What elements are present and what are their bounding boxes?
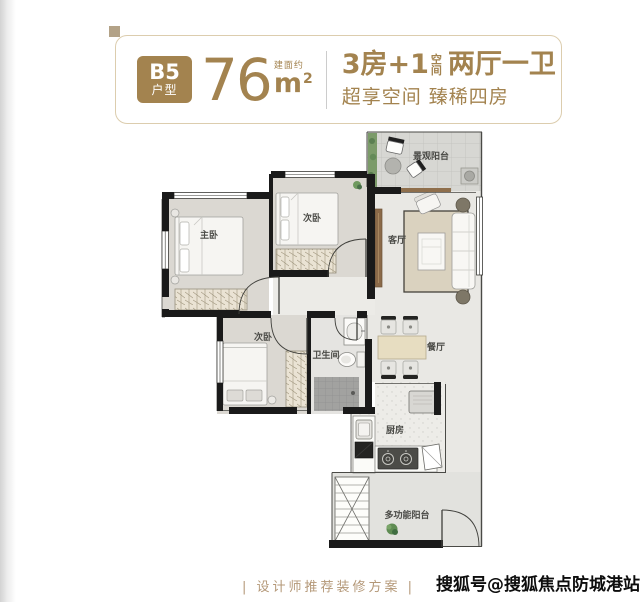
header-card: B5 户型 76 建面约 m2 3房+1 空 间 两厅一卫 超享空间 臻稀四房 — [115, 35, 562, 124]
room-label-bathroom: 卫生间 — [312, 349, 339, 361]
room-label-living-room: 客厅 — [387, 234, 406, 246]
dining-chair — [403, 361, 418, 379]
layout-headline: 3房+1 空 间 两厅一卫 — [342, 50, 556, 80]
area-value: 76 — [201, 49, 271, 111]
area-unit: m2 — [274, 71, 312, 101]
room-label-dining-room: 餐厅 — [426, 341, 445, 353]
area-display: 76 建面约 m2 — [201, 49, 312, 111]
room-label-kitchen: 厨房 — [386, 424, 404, 436]
floorplan: 景观阳台 次卧 主卧 客厅 次卧 卫生间 餐厅 厨房 多功能阳台 — [129, 129, 493, 559]
watermark: 搜狐号@搜狐焦点防城港站 — [436, 570, 640, 595]
dining-chair — [403, 316, 418, 334]
master-bedroom-furniture — [171, 209, 247, 310]
sliding-door — [401, 188, 451, 192]
page-edge-shade — [0, 0, 16, 602]
unit-type-badge: B5 户型 — [137, 56, 192, 103]
unit-type-code: B5 — [149, 62, 180, 83]
dining-chair — [381, 316, 396, 334]
dining-table — [378, 336, 426, 359]
room-label-bedroom-top: 次卧 — [303, 212, 321, 224]
room-label-bedroom-bottom: 次卧 — [254, 331, 272, 343]
header-title-block: 3房+1 空 间 两厅一卫 超享空间 臻稀四房 — [342, 50, 556, 109]
room-label-utility-balcony: 多功能阳台 — [384, 509, 429, 521]
headline-stack: 空 间 — [431, 54, 442, 76]
header-divider — [326, 51, 327, 109]
layout-subtitle: 超享空间 臻稀四房 — [342, 82, 556, 109]
dining-chair — [381, 361, 396, 379]
unit-type-label: 户型 — [151, 83, 177, 97]
room-label-landscape-balcony: 景观阳台 — [413, 150, 449, 162]
room-label-master-bedroom: 主卧 — [200, 229, 218, 241]
header-corner-square — [109, 26, 120, 37]
